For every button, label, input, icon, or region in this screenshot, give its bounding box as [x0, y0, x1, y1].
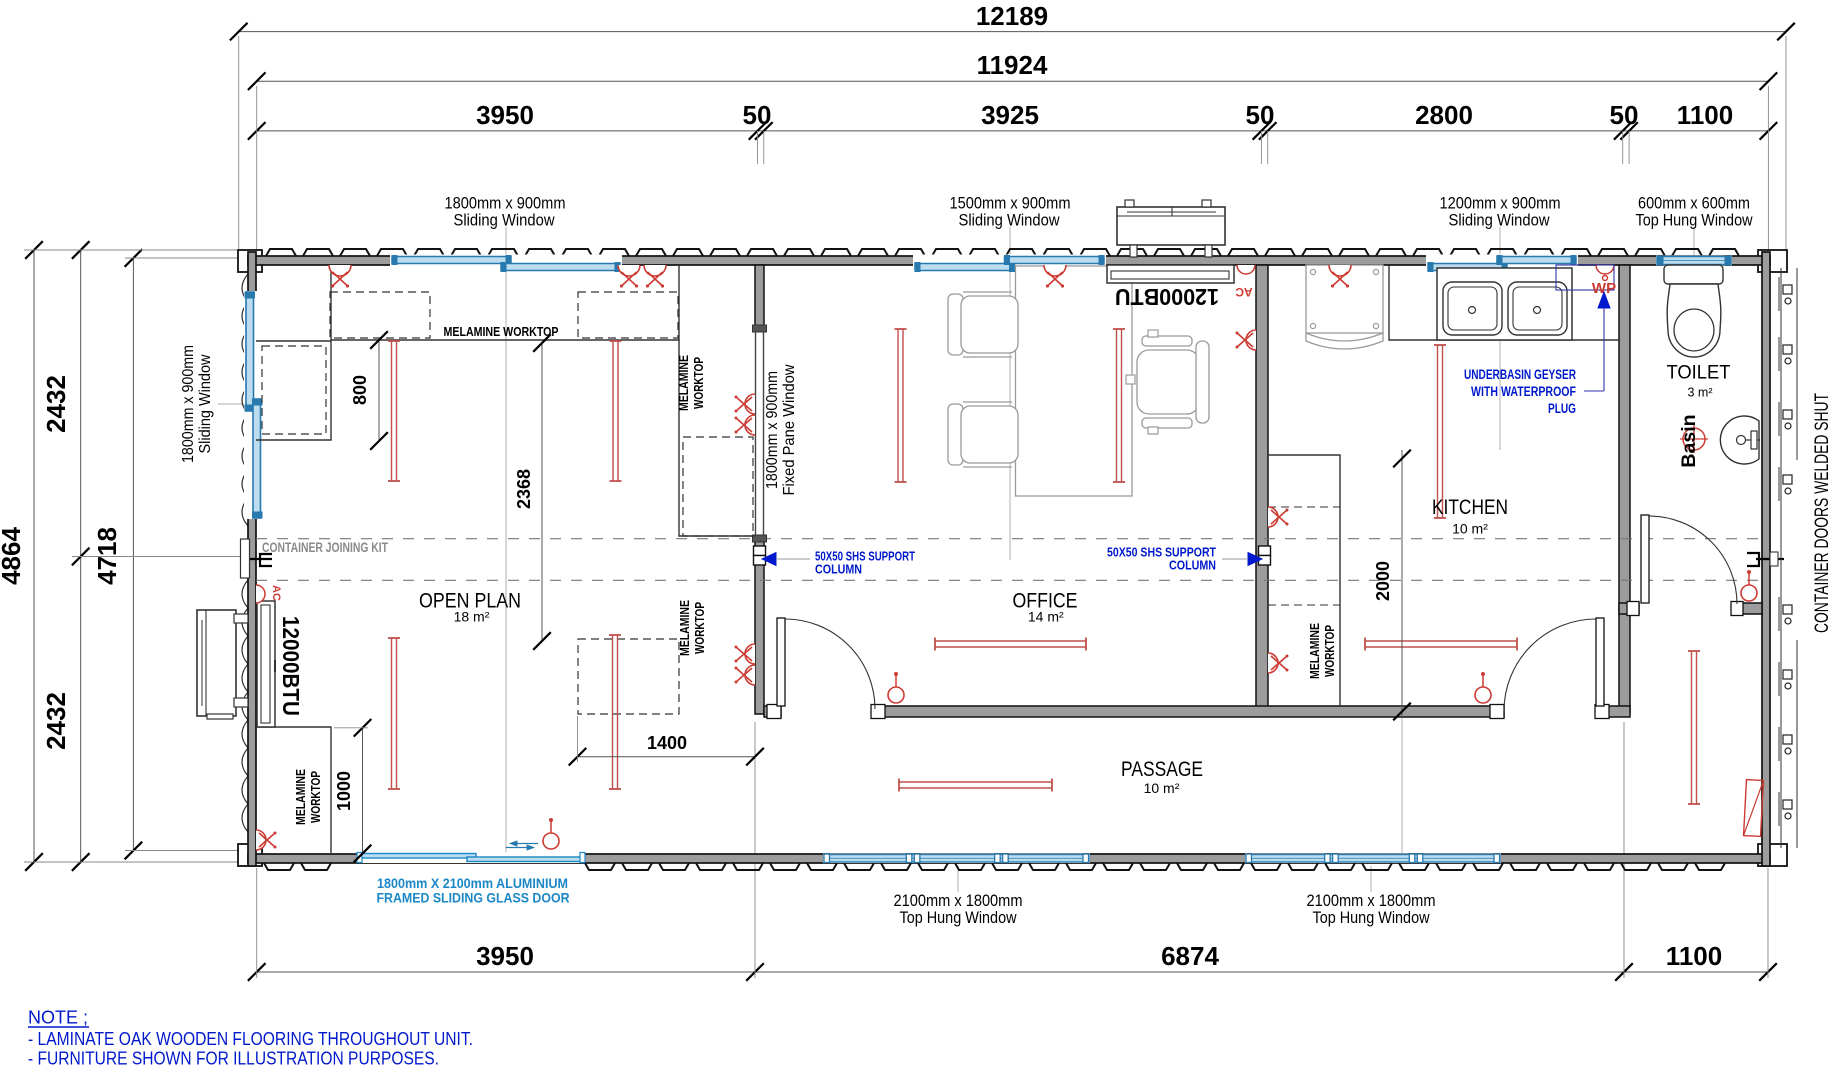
svg-text:11924: 11924	[977, 50, 1048, 80]
svg-text:2100mm x 1800mm: 2100mm x 1800mm	[1307, 892, 1436, 910]
svg-text:12189: 12189	[976, 1, 1048, 31]
svg-text:1100: 1100	[1666, 941, 1722, 971]
svg-text:2432: 2432	[41, 375, 71, 433]
svg-text:CONTAINER DOORS WELDED SHUT: CONTAINER DOORS WELDED SHUT	[1812, 393, 1833, 633]
svg-text:COLUMN: COLUMN	[815, 562, 862, 577]
svg-text:FRAMED SLIDING GLASS DOOR: FRAMED SLIDING GLASS DOOR	[377, 890, 570, 906]
svg-text:WITH WATERPROOF: WITH WATERPROOF	[1471, 384, 1576, 399]
svg-text:AC: AC	[270, 585, 282, 601]
svg-text:1400: 1400	[647, 733, 687, 753]
svg-text:2000: 2000	[1373, 561, 1393, 601]
svg-text:50: 50	[1246, 100, 1275, 130]
svg-text:3925: 3925	[981, 100, 1039, 130]
svg-text:Sliding Window: Sliding Window	[454, 212, 555, 230]
svg-text:Top Hung Window: Top Hung Window	[1313, 909, 1430, 927]
svg-text:KITCHEN: KITCHEN	[1432, 495, 1508, 519]
svg-text:800: 800	[350, 375, 370, 405]
svg-text:2432: 2432	[41, 692, 71, 750]
svg-text:MELAMINE WORKTOP: MELAMINE WORKTOP	[444, 324, 559, 339]
svg-text:1800mm x 900mm: 1800mm x 900mm	[445, 195, 566, 213]
svg-text:3950: 3950	[476, 100, 534, 130]
svg-text:12000BTU: 12000BTU	[1115, 284, 1219, 310]
svg-text:CONTAINER JOINING KIT: CONTAINER JOINING KIT	[262, 540, 389, 555]
svg-text:3 m²: 3 m²	[1688, 386, 1713, 400]
svg-text:- FURNITURE SHOWN FOR ILLUSTRA: - FURNITURE SHOWN FOR ILLUSTRATION PURPO…	[28, 1048, 439, 1069]
svg-text:10 m²: 10 m²	[1452, 521, 1488, 537]
svg-text:Fixed Pane Window: Fixed Pane Window	[781, 364, 798, 495]
svg-text:1200mm x 900mm: 1200mm x 900mm	[1440, 195, 1561, 213]
svg-text:Top Hung Window: Top Hung Window	[900, 909, 1017, 927]
svg-text:WP: WP	[1592, 280, 1616, 297]
svg-text:WORKTOP: WORKTOP	[693, 602, 707, 654]
svg-text:2368: 2368	[514, 469, 534, 509]
svg-text:TOILET: TOILET	[1667, 363, 1731, 384]
svg-text:6874: 6874	[1161, 941, 1219, 971]
svg-text:1800mm x 900mm: 1800mm x 900mm	[180, 345, 197, 463]
svg-text:- LAMINATE OAK WOODEN FLOORING: - LAMINATE OAK WOODEN FLOORING THROUGHOU…	[28, 1028, 473, 1049]
svg-text:1000: 1000	[334, 771, 354, 811]
svg-text:Sliding Window: Sliding Window	[197, 354, 214, 453]
svg-text:1800mm x 900mm: 1800mm x 900mm	[764, 371, 781, 489]
svg-text:MELAMINE: MELAMINE	[1308, 623, 1322, 679]
svg-text:50: 50	[1610, 100, 1639, 130]
svg-text:AC: AC	[1235, 285, 1253, 299]
svg-text:18 m²: 18 m²	[454, 609, 490, 625]
svg-text:Basin: Basin	[1678, 414, 1700, 467]
svg-text:12000BTU: 12000BTU	[278, 616, 304, 716]
svg-text:600mm x 600mm: 600mm x 600mm	[1638, 195, 1750, 213]
svg-text:1500mm x 900mm: 1500mm x 900mm	[950, 195, 1071, 213]
svg-text:4718: 4718	[92, 527, 122, 585]
svg-text:2100mm x 1800mm: 2100mm x 1800mm	[894, 892, 1023, 910]
svg-text:Sliding Window: Sliding Window	[1449, 212, 1550, 230]
svg-text:WORKTOP: WORKTOP	[309, 771, 323, 823]
svg-text:MELAMINE: MELAMINE	[678, 600, 692, 656]
svg-text:MELAMINE: MELAMINE	[294, 769, 308, 825]
svg-text:1100: 1100	[1677, 100, 1733, 130]
svg-text:2800: 2800	[1415, 100, 1473, 130]
svg-text:PASSAGE: PASSAGE	[1121, 757, 1203, 781]
svg-text:Top Hung Window: Top Hung Window	[1636, 212, 1753, 230]
svg-text:50: 50	[743, 100, 772, 130]
svg-text:WORKTOP: WORKTOP	[692, 357, 706, 409]
svg-text:COLUMN: COLUMN	[1169, 558, 1216, 573]
svg-text:NOTE ;: NOTE ;	[28, 1007, 88, 1028]
svg-text:14 m²: 14 m²	[1028, 609, 1064, 625]
svg-text:4864: 4864	[0, 527, 26, 585]
svg-text:Sliding Window: Sliding Window	[959, 212, 1060, 230]
svg-text:MELAMINE: MELAMINE	[677, 355, 691, 411]
svg-text:3950: 3950	[476, 941, 534, 971]
svg-text:PLUG: PLUG	[1548, 401, 1576, 416]
svg-text:10 m²: 10 m²	[1144, 780, 1180, 796]
svg-text:WORKTOP: WORKTOP	[1323, 625, 1337, 677]
svg-text:UNDERBASIN GEYSER: UNDERBASIN GEYSER	[1464, 367, 1576, 382]
